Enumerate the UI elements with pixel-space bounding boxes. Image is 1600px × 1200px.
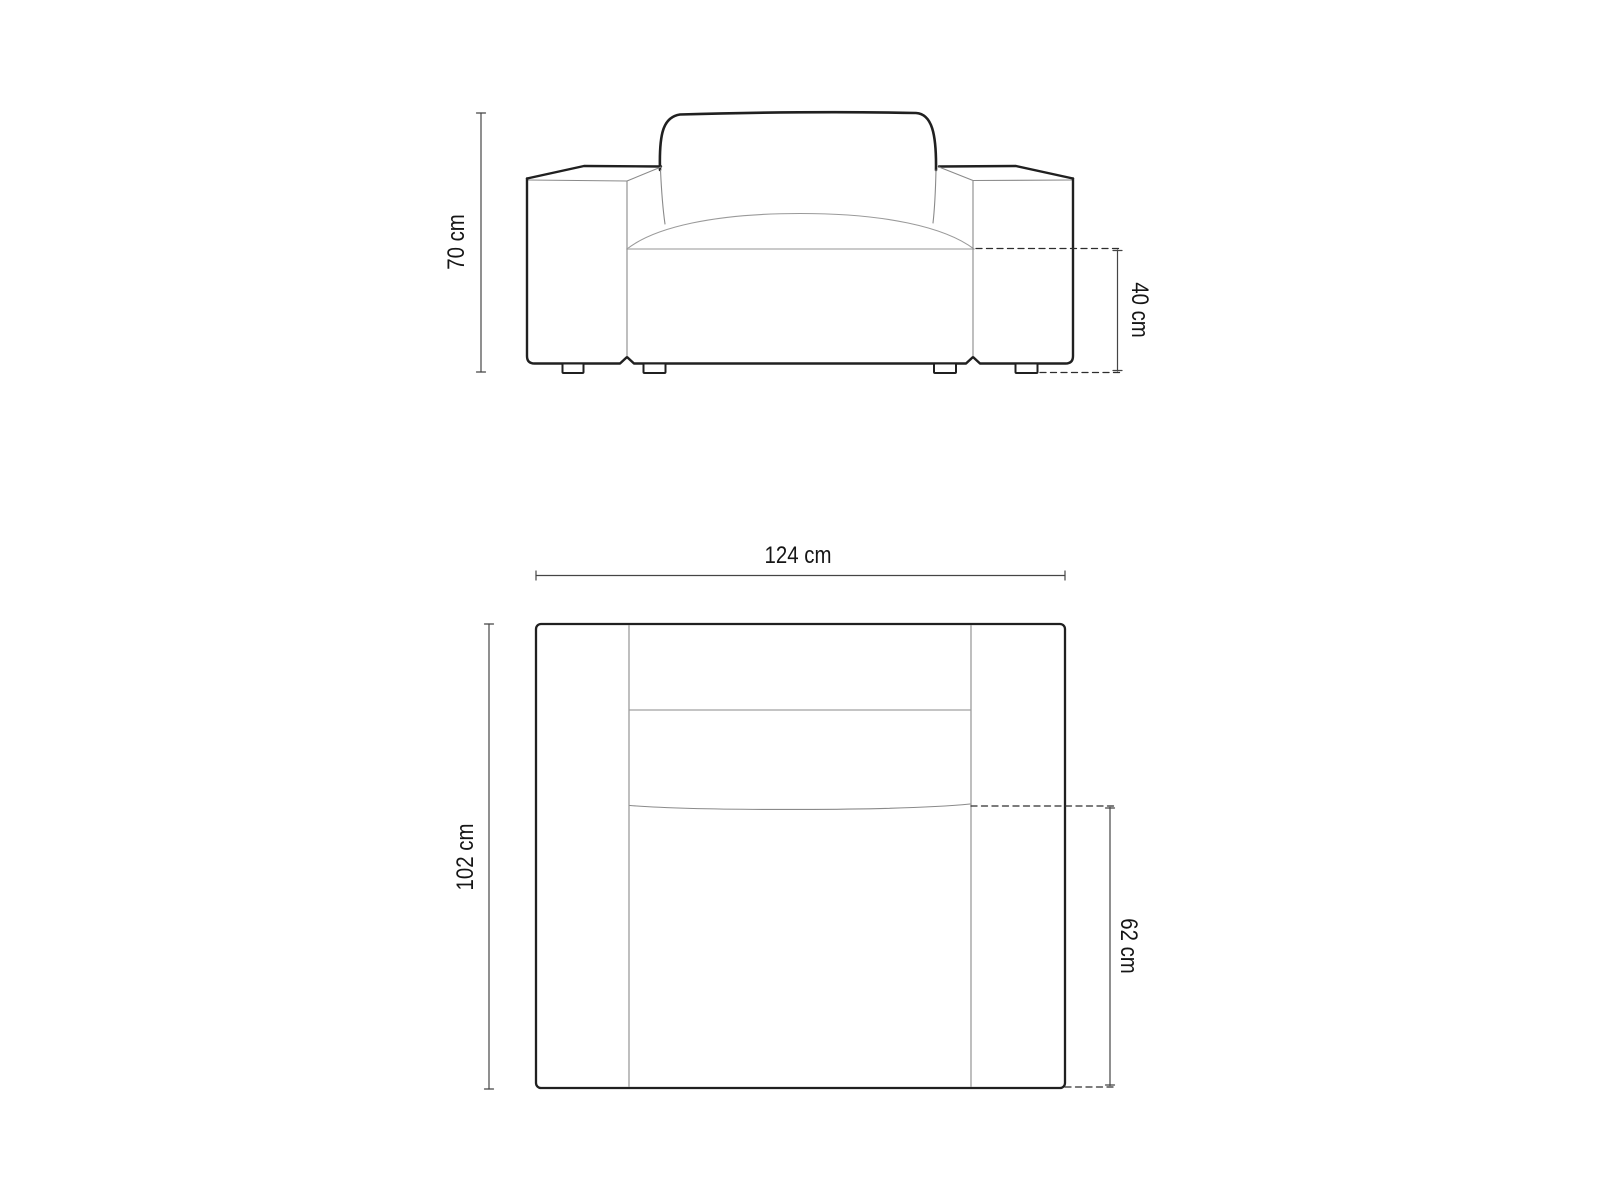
dim-overall-width [536,571,1065,580]
foot-4 [1016,364,1038,374]
seat-height-label: 40 cm [1125,282,1153,338]
top-view [485,571,1117,1089]
body-outline [527,179,1073,364]
backrest-outline [660,112,936,170]
front-view [477,112,1124,373]
line-art [0,0,1600,1200]
plan-outline [536,624,1065,1088]
dim-seat-height [976,249,1123,373]
seat-cushion-arc [627,214,974,250]
armrest-right-top-silhouette [939,166,1073,179]
foot-1 [563,364,584,374]
seat-depth-label: 62 cm [1114,918,1142,974]
dim-overall-height [477,113,486,372]
feet [563,364,1038,374]
overall-width-label: 124 cm [765,542,832,570]
armrest-left-top-silhouette [527,166,661,179]
overall-depth-label: 102 cm [452,824,480,891]
foot-3 [934,364,956,374]
backrest-right-edge [933,170,936,223]
drawing-canvas: 70 cm 40 cm 124 cm 102 cm 62 cm [0,0,1600,1200]
foot-2 [644,364,666,374]
dim-overall-depth [485,624,494,1089]
backrest-left-edge [661,170,666,224]
overall-height-label: 70 cm [443,214,471,270]
